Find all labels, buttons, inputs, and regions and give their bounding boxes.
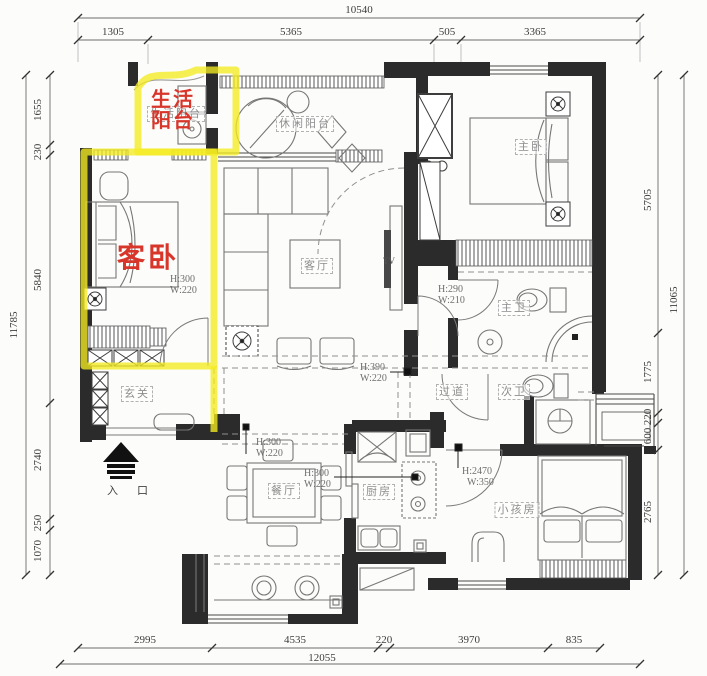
- highlight-label-living-balcony: 生活 阳台: [151, 90, 195, 132]
- annotation-w: W:210: [438, 295, 465, 306]
- dim-right-total: 11065: [668, 272, 680, 328]
- dim-bottom-seg4: 3970: [458, 634, 480, 646]
- room-label-second-bath: 次卫: [498, 384, 530, 400]
- annotation-w: W:220: [360, 373, 387, 384]
- dim-top-seg3: 505: [439, 26, 456, 38]
- annotation-master-bath: H:290 W:210: [438, 284, 465, 306]
- room-label-kitchen: 厨房: [363, 484, 395, 500]
- annotation-h: H:2470: [462, 466, 494, 477]
- annotation-w: W:220: [170, 285, 197, 296]
- annotation-dining-mid: H:300 W:220: [304, 468, 331, 490]
- room-label-dining-room: 餐厅: [268, 483, 300, 499]
- highlight-label-line2: 阳台: [151, 111, 195, 132]
- annotation-h: H:300: [304, 468, 331, 479]
- dim-top-seg4: 3365: [524, 26, 546, 38]
- dim-bottom-seg5: 835: [566, 634, 583, 646]
- dim-bottom-total: 12055: [308, 652, 336, 664]
- annotation-guest-bedroom: H:300 W:220: [170, 274, 197, 296]
- room-label-master-bath: 主卫: [498, 300, 530, 316]
- room-label-kids-room: 小孩房: [495, 502, 540, 518]
- dim-bottom-seg3: 220: [376, 634, 393, 646]
- dim-bottom-seg2: 4535: [284, 634, 306, 646]
- dim-right-seg4: 600: [642, 408, 654, 464]
- room-label-hallway: 过道: [436, 384, 468, 400]
- annotation-w: W:220: [256, 448, 283, 459]
- room-label-living-room: 客厅: [301, 258, 333, 274]
- tv-label: TV: [383, 256, 395, 266]
- annotation-kids-room: H:2470 W:350: [462, 466, 494, 488]
- highlight-label-line1: 生活: [151, 90, 195, 111]
- annotation-w: W:350: [462, 477, 494, 488]
- room-label-leisure-balcony: 休闲阳台: [276, 116, 334, 132]
- entrance-label: 入 口: [107, 482, 156, 498]
- room-label-master-bedroom: 主卧: [515, 139, 547, 155]
- dim-top-seg2: 5365: [280, 26, 302, 38]
- dim-left-seg2: 230: [32, 124, 44, 180]
- dim-left-total: 11785: [8, 297, 20, 353]
- room-label-entry: 玄关: [121, 386, 153, 402]
- annotation-w: W:220: [304, 479, 331, 490]
- annotation-h: H:290: [438, 284, 465, 295]
- dim-right-seg1: 5705: [642, 172, 654, 228]
- annotation-h: H:300: [256, 437, 283, 448]
- dim-left-seg3: 5840: [32, 252, 44, 308]
- annotation-living-room: H:390 W:220: [360, 362, 387, 384]
- highlight-label-guest-bedroom: 客卧: [117, 236, 179, 276]
- annotation-h: H:390: [360, 362, 387, 373]
- annotation-h: H:300: [170, 274, 197, 285]
- dim-right-seg5: 2765: [642, 484, 654, 540]
- floorplan-page: 10540 1305 5365 505 3365 11785 1655 230 …: [0, 0, 707, 676]
- dim-top-seg1: 1305: [102, 26, 124, 38]
- floorplan-drawing: [0, 0, 707, 676]
- dim-left-seg6: 1070: [32, 523, 44, 579]
- dim-top-total: 10540: [345, 4, 373, 16]
- entrance-arrow-icon: [103, 442, 139, 479]
- dim-left-seg4: 2740: [32, 432, 44, 488]
- annotation-dining-top: H:300 W:220: [256, 437, 283, 459]
- dim-bottom-seg1: 2995: [134, 634, 156, 646]
